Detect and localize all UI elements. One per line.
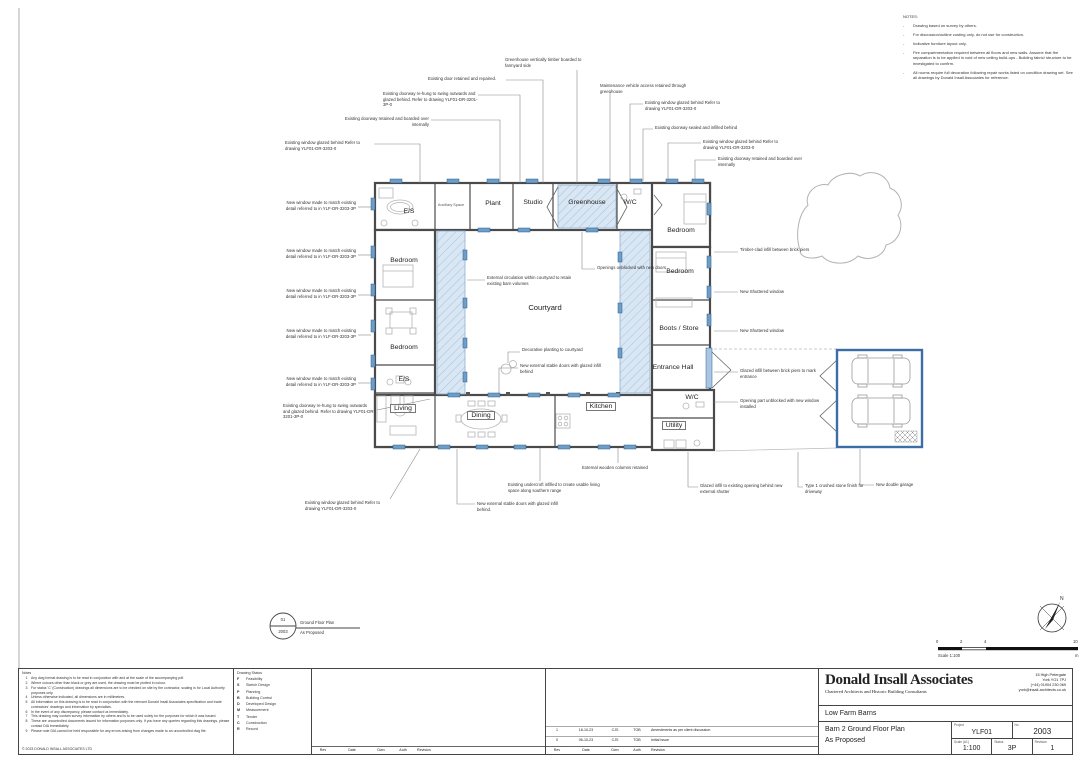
footer-note: 1Any dwg format drawing is to be read in… [22, 676, 230, 680]
footer-notes-title: Notes [22, 671, 230, 675]
scale-tick-0: 0 [936, 639, 938, 644]
status-item: FFeasibility [237, 677, 308, 681]
key-ref-sheet: 2003 [274, 629, 292, 634]
scale-unit: m [1075, 653, 1079, 658]
annotation-window-glazed-r2: Existing window glazed behind Refer to d… [703, 139, 793, 150]
firm-address: 15 High Petergate York YO1 7PJ (+44) 019… [1019, 673, 1066, 703]
footer-title-strip: Notes 1Any dwg format drawing is to be r… [18, 668, 1073, 755]
annotation-new-shuttered-1: New Shuttered window [740, 289, 820, 295]
note-item: -Fire compartmentation required between … [903, 50, 1075, 66]
room-label-kitchen: Kitchen [570, 403, 632, 410]
scale-bar [938, 647, 1078, 650]
status-item: PPlanning [237, 690, 308, 694]
field-project: Project YLF01 [952, 722, 1013, 738]
annotation-opening-unblocked: Opening part unblocked with new window i… [740, 398, 825, 409]
project-title: Low Farm Barns [819, 706, 1072, 722]
note-item: -All rooms require full decoration follo… [903, 70, 1075, 81]
notes-panel: NOTES: -Drawing based on survey by other… [903, 14, 1075, 84]
annotation-new-window-2: New window made to match existing detail… [278, 248, 356, 259]
room-label-entrance-hall: Entrance Hall [637, 364, 709, 371]
room-label-bedroom-w2: Bedroom [374, 344, 434, 351]
footer-revision-table: 1 18-10-23 CJS TOB Amendments as per cli… [546, 669, 819, 754]
footer-note: 9Please note DIA cannot be held responsi… [22, 729, 230, 733]
annotation-decorative-planting: Decorative planting to courtyard [522, 347, 597, 353]
annotation-crushed-stone: Type 1 crushed stone finish for driveway [805, 483, 867, 494]
annotation-doorway-rehung-bottom: Existing doorway re-hung to swing outwar… [283, 403, 375, 420]
field-number: No 2003 [1013, 722, 1073, 738]
room-label-es-west: E/S [384, 376, 424, 383]
annotation-external-circulation: External circulation within courtyard to… [487, 275, 572, 286]
room-label-bedroom-w1: Bedroom [374, 257, 434, 264]
annotation-greenhouse-timber: Greenhouse vertically timber boarded to … [505, 57, 585, 68]
key-ref-line1: Ground Floor Plan [300, 620, 362, 625]
footer-note: 8These are uncontrolled documents issued… [22, 719, 230, 728]
footer-note: 3For status 'C' (Construction) drawings … [22, 686, 230, 695]
annotation-maintenance-access: Maintenance vehicle access retained thro… [600, 83, 695, 94]
note-item: -Indicative furniture layout only. [903, 41, 1075, 46]
footer-note: 6In the event of any discrepancy, please… [22, 710, 230, 714]
annotation-doorway-boarded-right: Existing doorway retained and boarded ov… [718, 156, 808, 167]
status-item: RRecord [237, 727, 308, 731]
field-status: Status 3P [992, 739, 1032, 755]
footer-notes: Notes 1Any dwg format drawing is to be r… [19, 669, 234, 754]
north-label: N [1060, 596, 1064, 603]
status-item: TTender [237, 715, 308, 719]
annotation-stable-doors-bottom: New external stable doors with glazed in… [477, 501, 562, 512]
scale-tick-10: 10 [1073, 639, 1078, 644]
annotation-new-window-1: New window made to match existing detail… [278, 200, 356, 211]
firm-header: Donald Insall Associates Chartered Archi… [819, 669, 1072, 706]
drawing-title: Barn 2 Ground Floor Plan As Proposed [819, 722, 951, 754]
revision-table-header: Rev Date Dwn Auth Revision [546, 746, 818, 752]
footer-title-block: Donald Insall Associates Chartered Archi… [819, 669, 1072, 754]
annotation-new-shuttered-2: New Shuttered window [740, 328, 820, 334]
revision-table-header: Rev Date Dwn Auth Revision [312, 746, 545, 752]
firm-tagline: Chartered Architects and Historic Buildi… [825, 689, 973, 694]
annotation-doorway-sealed: Existing doorway sealed and infilled beh… [655, 125, 740, 131]
status-item: BBuilding Control [237, 696, 308, 700]
scale-tick-4: 4 [984, 639, 986, 644]
annotation-timber-clad-infill: Timber-clad infill between brick piers [740, 247, 825, 253]
room-label-dining: Dining [450, 412, 512, 419]
annotation-doorway-rehung-top: Existing doorway re-hung to swing outwar… [383, 91, 478, 108]
annotation-new-window-5: New window made to match existing detail… [278, 376, 356, 387]
copyright: © 2023 DONALD INSALL ASSOCIATES LTD [22, 747, 92, 751]
room-label-wc-north: W/C [610, 199, 650, 206]
room-label-es-north: E/S [379, 208, 439, 215]
annotation-window-glazed-left-top: Existing window glazed behind Refer to d… [285, 140, 373, 151]
room-label-boots-store: Boots / Store [643, 325, 715, 332]
room-label-wc-east: W/C [672, 394, 712, 401]
annotation-doorway-boarded-top: Existing doorway retained and boarded ov… [337, 116, 429, 127]
annotation-new-window-3: New window made to match existing detail… [278, 288, 356, 299]
field-revision: Revision 1 [1033, 739, 1072, 755]
annotation-wooden-columns: External wooden columns retained [582, 465, 657, 471]
drawing-status-title: Drawing Status [237, 671, 308, 675]
footer-revision-table-empty: Rev Date Dwn Auth Revision [312, 669, 546, 754]
field-scale: Scale (A1) 1:100 [952, 739, 992, 755]
annotation-door-retained: Existing door retained and repaired. [428, 76, 506, 82]
status-item: CConstruction [237, 721, 308, 725]
notes-title: NOTES: [903, 14, 1075, 19]
revision-row: 0 06-10-23 CJS TOB Initial Issue [546, 736, 818, 742]
room-label-courtyard: Courtyard [510, 303, 580, 312]
key-ref-number: 01 [276, 617, 290, 622]
floor-plan-drawing [0, 0, 1087, 768]
room-label-utility: Utility [648, 422, 700, 429]
status-item: SSketch Design [237, 683, 308, 687]
north-arrow-icon [1038, 602, 1066, 632]
status-item: MMeasurement [237, 708, 308, 712]
footer-note: 7This drawing may contain survey informa… [22, 714, 230, 718]
annotation-new-window-4: New window made to match existing detail… [278, 328, 356, 339]
note-item: -Drawing based on survey by others. [903, 23, 1075, 28]
annotation-double-garage: New double garage [876, 482, 936, 488]
status-item: DDeveloped Design [237, 702, 308, 706]
footer-drawing-status: Drawing Status FFeasibility SSketch Desi… [234, 669, 312, 754]
annotation-undercroft: Existing undercroft infilled to create u… [508, 482, 603, 493]
footer-note: 5All information on this drawing is to b… [22, 700, 230, 709]
scale-label: Scale 1:100 [938, 653, 960, 658]
note-item: -For discussion/outline costing only, do… [903, 32, 1075, 37]
footer-note: 4Unless otherwise indicated, all dimensi… [22, 695, 230, 699]
annotation-glazed-infill-entrance: Glazed infill between brick piers to mar… [740, 368, 820, 379]
annotation-glazed-infill-shutter: Glazed infill to existing opening behind… [700, 483, 785, 494]
title-block-fields: Project YLF01 No 2003 Scale (A1) 1:100 S… [951, 722, 1072, 754]
annotation-window-glazed-bottom: Existing window glazed behind Refer to d… [305, 500, 390, 511]
footer-note: 2Where colours other than black or grey … [22, 681, 230, 685]
firm-name: Donald Insall Associates [825, 673, 973, 688]
annotation-window-glazed-r1: Existing window glazed behind Refer to d… [645, 100, 735, 111]
room-label-living: Living [372, 405, 434, 412]
scale-tick-2: 2 [960, 639, 962, 644]
room-label-bedroom-ne: Bedroom [651, 227, 711, 234]
annotation-openings-unblocked: Openings unblocked with new doors [597, 265, 677, 271]
annotation-stable-doors-court: New external stable doors with glazed in… [520, 363, 612, 374]
revision-row: 1 18-10-23 CJS TOB Amendments as per cli… [546, 726, 818, 732]
key-ref-line2: As Proposed [300, 630, 362, 635]
